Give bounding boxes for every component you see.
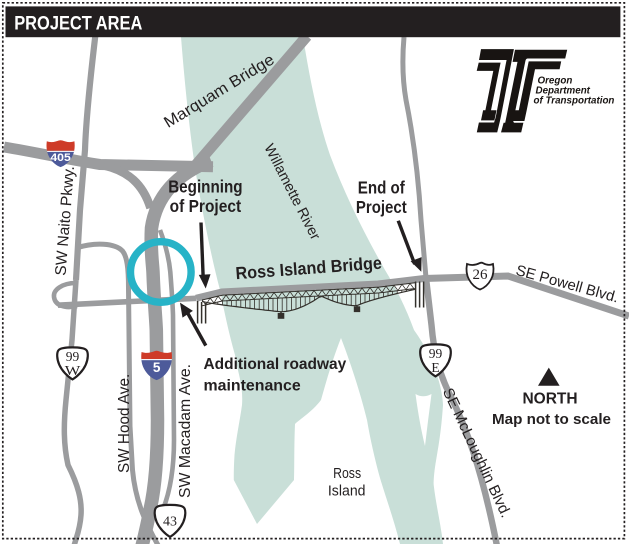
svg-text:405: 405 — [50, 152, 71, 164]
svg-text:Beginning: Beginning — [168, 176, 242, 196]
svg-text:maintenance: maintenance — [204, 378, 301, 395]
svg-text:Ross: Ross — [333, 465, 361, 482]
svg-text:End of: End of — [358, 177, 405, 197]
svg-text:SW Macadam Ave.: SW Macadam Ave. — [177, 364, 194, 498]
svg-text:43: 43 — [163, 515, 177, 530]
svg-text:26: 26 — [473, 267, 489, 283]
svg-text:99: 99 — [66, 349, 80, 364]
svg-text:SW Hood Ave.: SW Hood Ave. — [116, 374, 133, 473]
svg-text:Project: Project — [356, 197, 407, 217]
svg-text:of Transportation: of Transportation — [534, 95, 615, 106]
svg-text:NORTH: NORTH — [522, 391, 577, 408]
svg-text:Island: Island — [328, 482, 366, 499]
svg-text:Additional roadway: Additional roadway — [204, 356, 347, 373]
svg-text:of Project: of Project — [170, 196, 242, 216]
svg-text:Map not to scale: Map not to scale — [492, 411, 611, 428]
svg-text:5: 5 — [153, 360, 161, 375]
svg-text:W: W — [65, 364, 81, 379]
svg-text:E: E — [431, 360, 439, 375]
svg-text:99: 99 — [429, 346, 443, 361]
svg-text:PROJECT AREA: PROJECT AREA — [14, 12, 142, 34]
